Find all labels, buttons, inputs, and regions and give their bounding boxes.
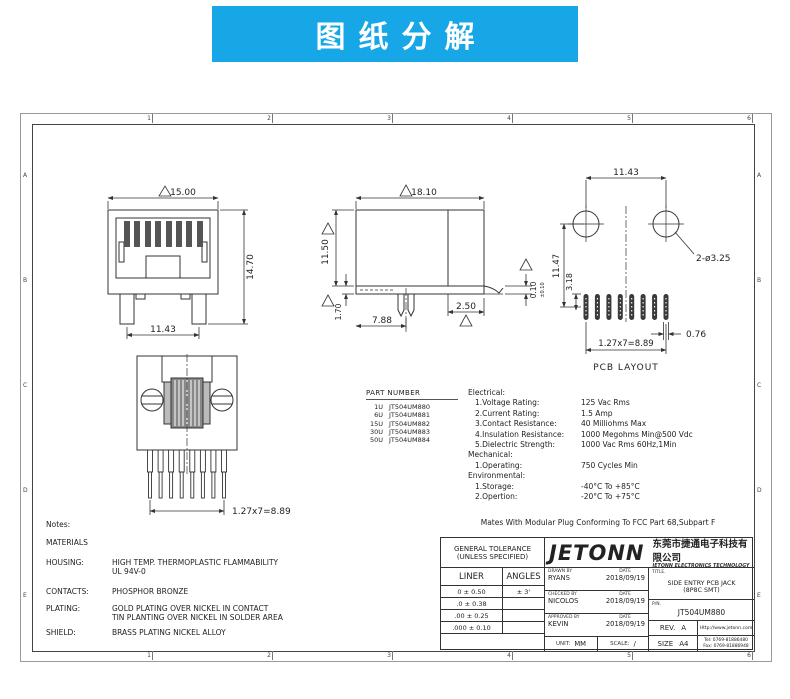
note-line: UL 94V-0: [112, 567, 278, 576]
environmental-title: Environmental:: [468, 471, 760, 481]
inspection-triangle: [520, 259, 532, 270]
dim-side-peg: 7.88: [372, 316, 392, 326]
company-name-cn: 东莞市捷通电子科技有限公司: [653, 536, 751, 564]
spec-row: 1.Operating:750 Cycles Min: [468, 461, 760, 471]
banner-title: 图纸分解: [303, 12, 488, 56]
general-tolerance-line2: (UNLESS SPECIFIED): [457, 553, 528, 561]
approved-by-value: KEVIN: [548, 620, 569, 628]
scale-label: SCALE:: [610, 641, 630, 647]
bottom-view-drawing: 1.27x7=8.89: [92, 352, 327, 522]
note-label: SHIELD:: [46, 628, 112, 637]
spec-label: 1.Operating:: [475, 461, 581, 471]
spec-row: 3.Contact Resistance:40 Milliohms Max: [468, 419, 760, 429]
tolerance-liner: .0 ± 0.38: [441, 598, 503, 610]
spec-value: -20°C To +75°C: [581, 492, 640, 502]
spec-label: 4.Insulation Resistance:: [475, 430, 581, 440]
drawn-by-value: RYANS: [548, 574, 570, 582]
dim-pcb-holes: 2-ø3.25: [696, 254, 731, 264]
title-block: GENERAL TOLERANCE (UNLESS SPECIFIED) LIN…: [440, 537, 753, 650]
note-line: HIGH TEMP. THERMOPLASTIC FLAMMABILITY: [112, 558, 278, 567]
note-item: CONTACTS: PHOSPHOR BRONZE: [46, 587, 188, 596]
fax: Fax: 0769-81886948: [703, 644, 748, 650]
dim-bottom-pitch: 1.27x7=8.89: [232, 507, 291, 517]
note-label: CONTACTS:: [46, 587, 112, 596]
table-row: 50U JT504UM884: [366, 436, 458, 444]
pcb-dimension-lines: [560, 178, 694, 354]
dim-side-coplanarity: 0.10: [529, 281, 538, 298]
dim-pcb-height: 11.47: [552, 254, 562, 278]
bottom-view-dimension-lines: [150, 500, 224, 515]
spec-value: 1000 Vac Rms 60Hz,1Min: [581, 440, 677, 450]
general-tolerance-line1: GENERAL TOLERANCE: [454, 545, 531, 553]
part-code: 30U: [366, 428, 383, 436]
rev-cell: REV. A: [649, 621, 698, 636]
inspection-triangle: [322, 295, 334, 306]
spec-row: 1.Voltage Rating:125 Vac Rms: [468, 398, 760, 408]
company-names: 东莞市捷通电子科技有限公司 JETONN ELECTRONICS TECHNOL…: [653, 536, 751, 569]
spec-row: 4.Insulation Resistance:1000 Megohms Min…: [468, 430, 760, 440]
dim-pcb-hole-span: 11.43: [613, 168, 639, 178]
dim-side-standoff: 1.70: [334, 303, 343, 320]
table-row: 6U JT504UM881: [366, 411, 458, 419]
part-number: JT504UM882: [389, 420, 430, 428]
company-header: JETONN 东莞市捷通电子科技有限公司 JETONN ELECTRONICS …: [545, 538, 754, 568]
general-tolerance-cell: GENERAL TOLERANCE (UNLESS SPECIFIED): [441, 538, 545, 568]
unit-value: MM: [574, 640, 586, 648]
note-line: BRASS PLATING NICKEL ALLOY: [112, 628, 226, 637]
note-label: HOUSING:: [46, 558, 112, 576]
spec-label: 2.Opertion:: [475, 492, 581, 502]
table-row: 30U JT504UM883: [366, 428, 458, 436]
fcc-footnote: Mates With Modular Plug Conforming To FC…: [440, 518, 756, 527]
grid-row-label: D: [23, 487, 31, 495]
tel-fax-cell: Tel: 0769-81886480 Fax: 0769-81886948: [698, 636, 754, 651]
inspection-triangle: [460, 315, 472, 326]
rev-label: REV.: [660, 624, 675, 632]
scale-cell: SCALE: /: [598, 637, 649, 651]
note-item: HOUSING: HIGH TEMP. THERMOPLASTIC FLAMMA…: [46, 558, 278, 576]
pcb-dim-labels: 11.43 2-ø3.25 11.47 3.18 0.76 1.27x7=8.8…: [552, 168, 731, 373]
part-number: JT504UM884: [389, 436, 430, 444]
note-line: GOLD PLATING OVER NICKEL IN CONTACT: [112, 604, 283, 613]
website-cell: Http://www.jetonn.com: [698, 621, 754, 636]
front-view-drawing: 15.00 14.70 11.43: [70, 182, 310, 342]
grid-col-label: 2: [253, 651, 273, 660]
dim-side-tail: 2.50: [456, 302, 476, 312]
approved-by-cell: APPROVED BYDATE KEVIN2018/09/19: [545, 614, 649, 637]
spec-label: 2.Current Rating:: [475, 409, 581, 419]
checked-date-value: 2018/09/19: [606, 597, 645, 605]
spec-value: 40 Milliohms Max: [581, 419, 646, 429]
drawing-title-line2: (8P8C SMT): [683, 587, 719, 594]
size-value: A4: [679, 640, 688, 648]
part-code: 15U: [366, 420, 383, 428]
materials-title: MATERIALS: [46, 538, 88, 547]
part-number-table: PART NUMBER 1U JT504UM880 6U JT504UM881 …: [366, 389, 458, 444]
pn-cell: P/N. JT504UM880: [649, 600, 754, 621]
page: 图纸分解 1 2 3 4 5 6 1 2 3 4 5 6 A B C D E A…: [0, 0, 790, 699]
checked-by-value: NICOLOS: [548, 597, 578, 605]
spec-label: 5.Dielectric Strength:: [475, 440, 581, 450]
tolerance-liner: .00 ± 0.25: [441, 610, 503, 622]
side-view-outline: [356, 210, 503, 332]
tolerance-angle: [503, 598, 545, 610]
notes-title-text: Notes:: [46, 520, 70, 529]
spec-value: 1000 Megohms Min@500 Vdc: [581, 430, 693, 440]
dim-pcb-pitch: 1.27x7=8.89: [598, 339, 653, 349]
tolerance-empty-cell: [441, 634, 545, 651]
dim-front-feet: 11.43: [150, 325, 176, 335]
pcb-layout-caption: PCB LAYOUT: [593, 363, 659, 373]
banner: 图纸分解: [212, 6, 578, 62]
grid-col-label: 1: [133, 651, 153, 660]
drawing-title-line1: SIDE ENTRY PCB JACK: [667, 580, 735, 587]
grid-row-label: B: [23, 277, 31, 285]
part-code: 6U: [366, 411, 383, 419]
grid-col-label: 4: [493, 114, 513, 123]
note-line: PHOSPHOR BRONZE: [112, 587, 188, 596]
spec-row: 1.Storage:-40°C To +85°C: [468, 482, 760, 492]
side-view-drawing: 18.10 11.50 1.70 7.88 2.50 0.10 ±0.10: [298, 182, 548, 342]
note-label: PLATING:: [46, 604, 112, 622]
part-number-title: PART NUMBER: [366, 389, 458, 400]
spec-value: 1.5 Amp: [581, 409, 613, 419]
dim-side-coplanarity-tol: ±0.10: [540, 282, 546, 297]
notes-title: Notes:: [46, 520, 70, 529]
tolerance-liner: .000 ± 0.10: [441, 622, 503, 634]
angles-header: ANGLES: [503, 568, 545, 586]
grid-row-label: C: [23, 382, 31, 390]
part-number: JT504UM883: [389, 428, 430, 436]
dim-pcb-pad-width: 0.76: [686, 330, 706, 340]
grid-row-label: B: [757, 277, 765, 285]
tolerance-angle: [503, 622, 545, 634]
size-cell: SIZE A4: [649, 636, 698, 651]
part-code: 50U: [366, 436, 383, 444]
rev-value: A: [681, 624, 686, 632]
spec-value: 125 Vac Rms: [581, 398, 630, 408]
grid-row-label: A: [23, 172, 31, 180]
specifications: Electrical: 1.Voltage Rating:125 Vac Rms…: [468, 388, 760, 502]
electrical-title: Electrical:: [468, 388, 760, 398]
note-value: GOLD PLATING OVER NICKEL IN CONTACT TIN …: [112, 604, 283, 622]
table-row: 15U JT504UM882: [366, 420, 458, 428]
dim-front-height: 14.70: [246, 254, 256, 280]
liner-header: LINER: [441, 568, 503, 586]
jetonn-logo: JETONN: [549, 541, 645, 565]
drawn-by-cell: DRAWN BYDATE RYANS2018/09/19: [545, 568, 649, 591]
grid-col-label: 1: [133, 114, 153, 123]
side-view-dim-labels: 18.10 11.50 1.70 7.88 2.50 0.10 ±0.10: [321, 188, 546, 326]
pcb-layout-drawing: 11.43 2-ø3.25 11.47 3.18 0.76 1.27x7=8.8…: [548, 162, 753, 377]
grid-col-label: 3: [373, 114, 393, 123]
side-view-dimension-lines: [322, 185, 532, 330]
grid-col-label: 5: [613, 651, 633, 660]
inspection-triangle: [322, 223, 334, 234]
grid-col-label: 5: [613, 114, 633, 123]
grid-col-label: 3: [373, 651, 393, 660]
dim-front-width: 15.00: [170, 188, 196, 198]
part-number: JT504UM880: [389, 403, 430, 411]
unit-label: UNIT:: [556, 641, 570, 647]
note-item: PLATING: GOLD PLATING OVER NICKEL IN CON…: [46, 604, 283, 622]
mechanical-title: Mechanical:: [468, 450, 760, 460]
spec-value: 750 Cycles Min: [581, 461, 638, 471]
grid-col-label: 6: [733, 114, 753, 123]
approved-date-value: 2018/09/19: [606, 620, 645, 628]
table-row: 1U JT504UM880: [366, 403, 458, 411]
part-code: 1U: [366, 403, 383, 411]
grid-col-label: 6: [733, 651, 753, 660]
pn-value: JT504UM880: [678, 608, 725, 617]
grid-row-label: E: [23, 592, 31, 600]
note-line: TIN PLANTING OVER NICKEL IN SOLDER AREA: [112, 613, 283, 622]
spec-row: 2.Current Rating:1.5 Amp: [468, 409, 760, 419]
unit-cell: UNIT: MM: [545, 637, 598, 651]
website: Http://www.jetonn.com: [700, 626, 753, 631]
spec-label: 1.Voltage Rating:: [475, 398, 581, 408]
grid-row-label: E: [757, 592, 765, 600]
grid-row-label: A: [757, 172, 765, 180]
front-view-dimension-lines: [108, 186, 248, 339]
checked-by-cell: CHECKED BYDATE NICOLOS2018/09/19: [545, 591, 649, 614]
grid-col-label: 4: [493, 651, 513, 660]
bottom-view-outline: [137, 354, 237, 474]
note-value: HIGH TEMP. THERMOPLASTIC FLAMMABILITY UL…: [112, 558, 278, 576]
spec-value: -40°C To +85°C: [581, 482, 640, 492]
title-cell: TITLE. SIDE ENTRY PCB JACK (8P8C SMT): [649, 568, 754, 600]
tolerance-angle: [503, 610, 545, 622]
front-view-contacts: [124, 221, 203, 247]
grid-col-label: 2: [253, 114, 273, 123]
spec-row: 2.Opertion:-20°C To +75°C: [468, 492, 760, 502]
size-label: SIZE: [658, 640, 674, 648]
tolerance-angle: ± 3': [503, 586, 545, 598]
dim-pcb-pad: 3.18: [565, 273, 574, 291]
dim-side-height: 11.50: [321, 239, 331, 265]
spec-row: 5.Dielectric Strength:1000 Vac Rms 60Hz,…: [468, 440, 760, 450]
spec-label: 1.Storage:: [475, 482, 581, 492]
part-number: JT504UM881: [389, 411, 430, 419]
spec-label: 3.Contact Resistance:: [475, 419, 581, 429]
title-label: TITLE.: [652, 570, 666, 575]
drawn-date-value: 2018/09/19: [606, 574, 645, 582]
materials-title-text: MATERIALS: [46, 538, 88, 547]
scale-value: /: [634, 640, 636, 648]
dim-side-width: 18.10: [411, 188, 437, 198]
tolerance-liner: 0 ± 0.50: [441, 586, 503, 598]
note-item: SHIELD: BRASS PLATING NICKEL ALLOY: [46, 628, 226, 637]
